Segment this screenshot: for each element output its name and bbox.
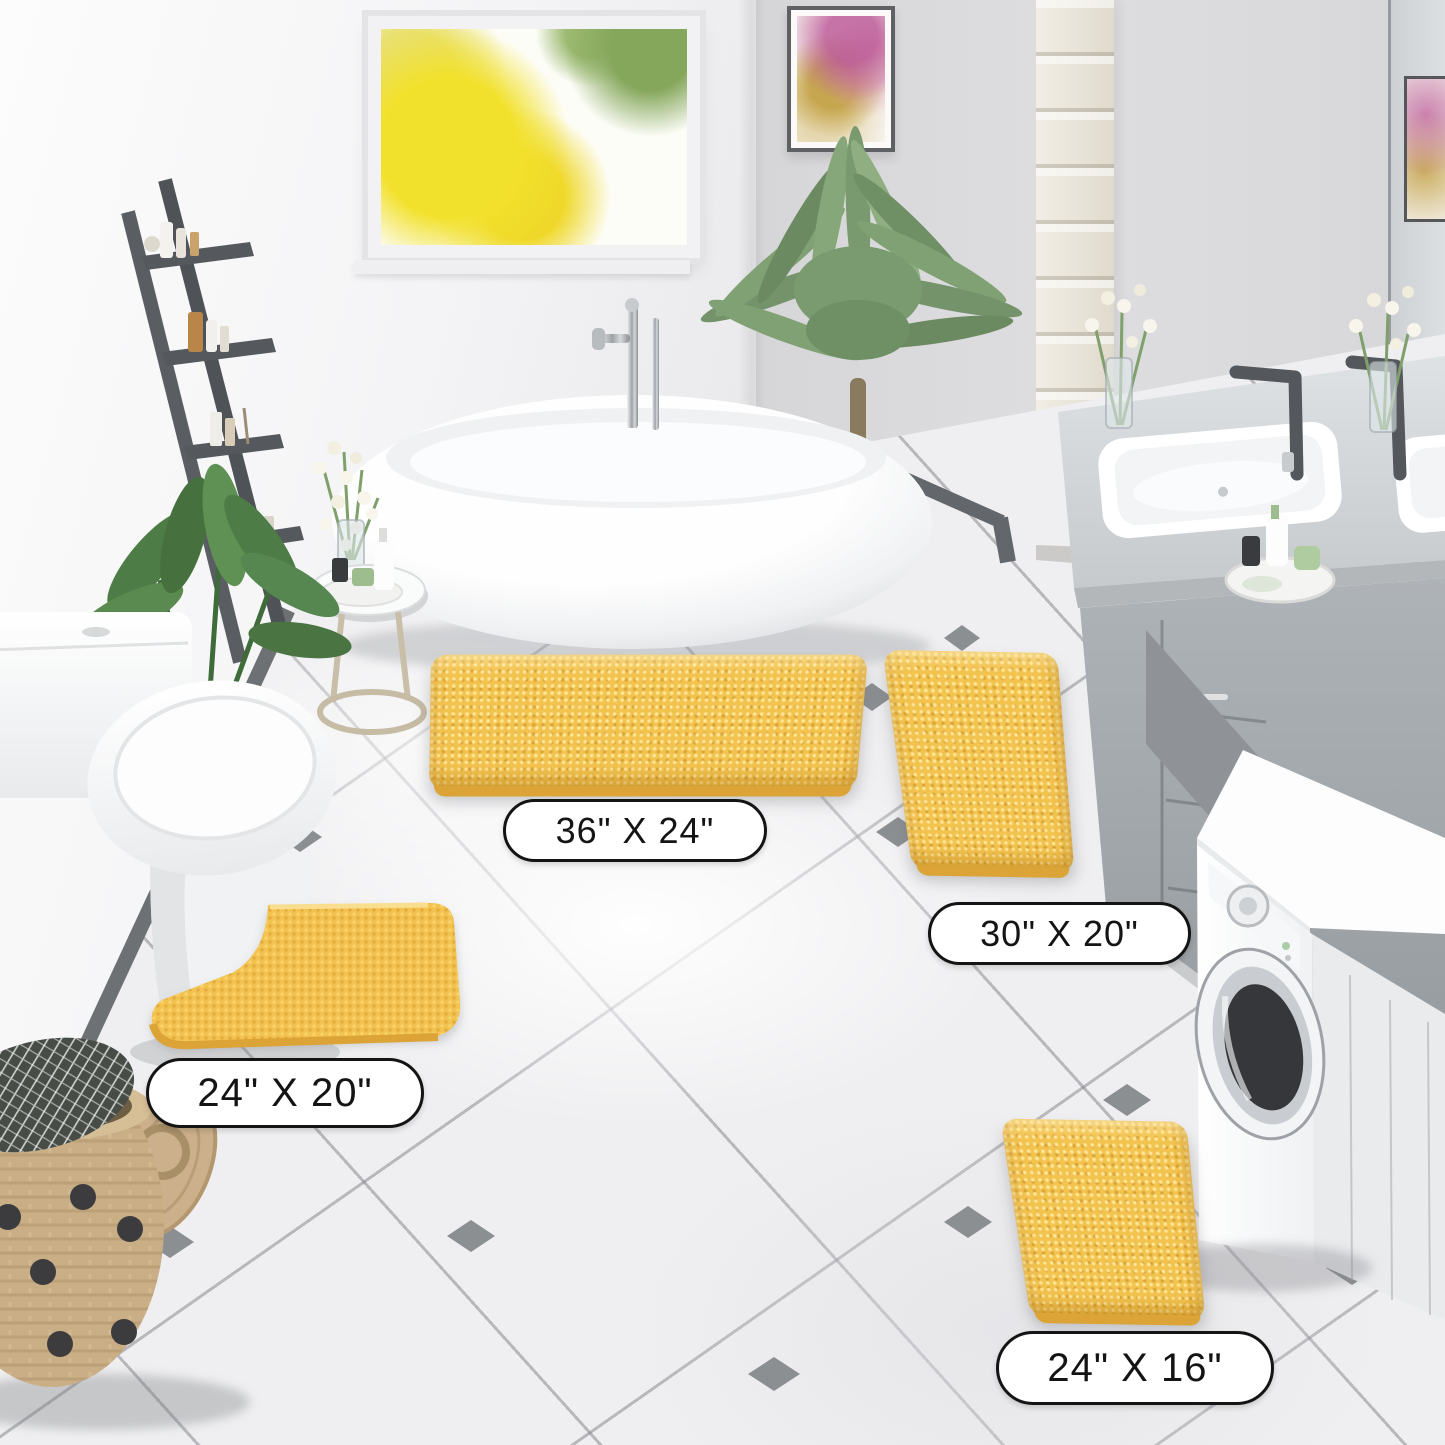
rug-runner bbox=[882, 650, 1074, 872]
bathtub bbox=[332, 395, 932, 674]
size-label-large: 36" X 24" bbox=[503, 799, 767, 862]
vanity-sink bbox=[1096, 420, 1344, 541]
palm-plant bbox=[697, 126, 1025, 452]
size-label-contour: 24" X 20" bbox=[146, 1058, 424, 1128]
bathroom-product-photo: 36" X 24" 30" X 20" 24" X 20" 24" X 16" bbox=[0, 0, 1445, 1445]
rug-large bbox=[429, 655, 868, 790]
rug-small bbox=[1000, 1119, 1205, 1320]
size-label-runner: 30" X 20" bbox=[928, 902, 1191, 965]
size-label-small: 24" X 16" bbox=[996, 1331, 1274, 1405]
